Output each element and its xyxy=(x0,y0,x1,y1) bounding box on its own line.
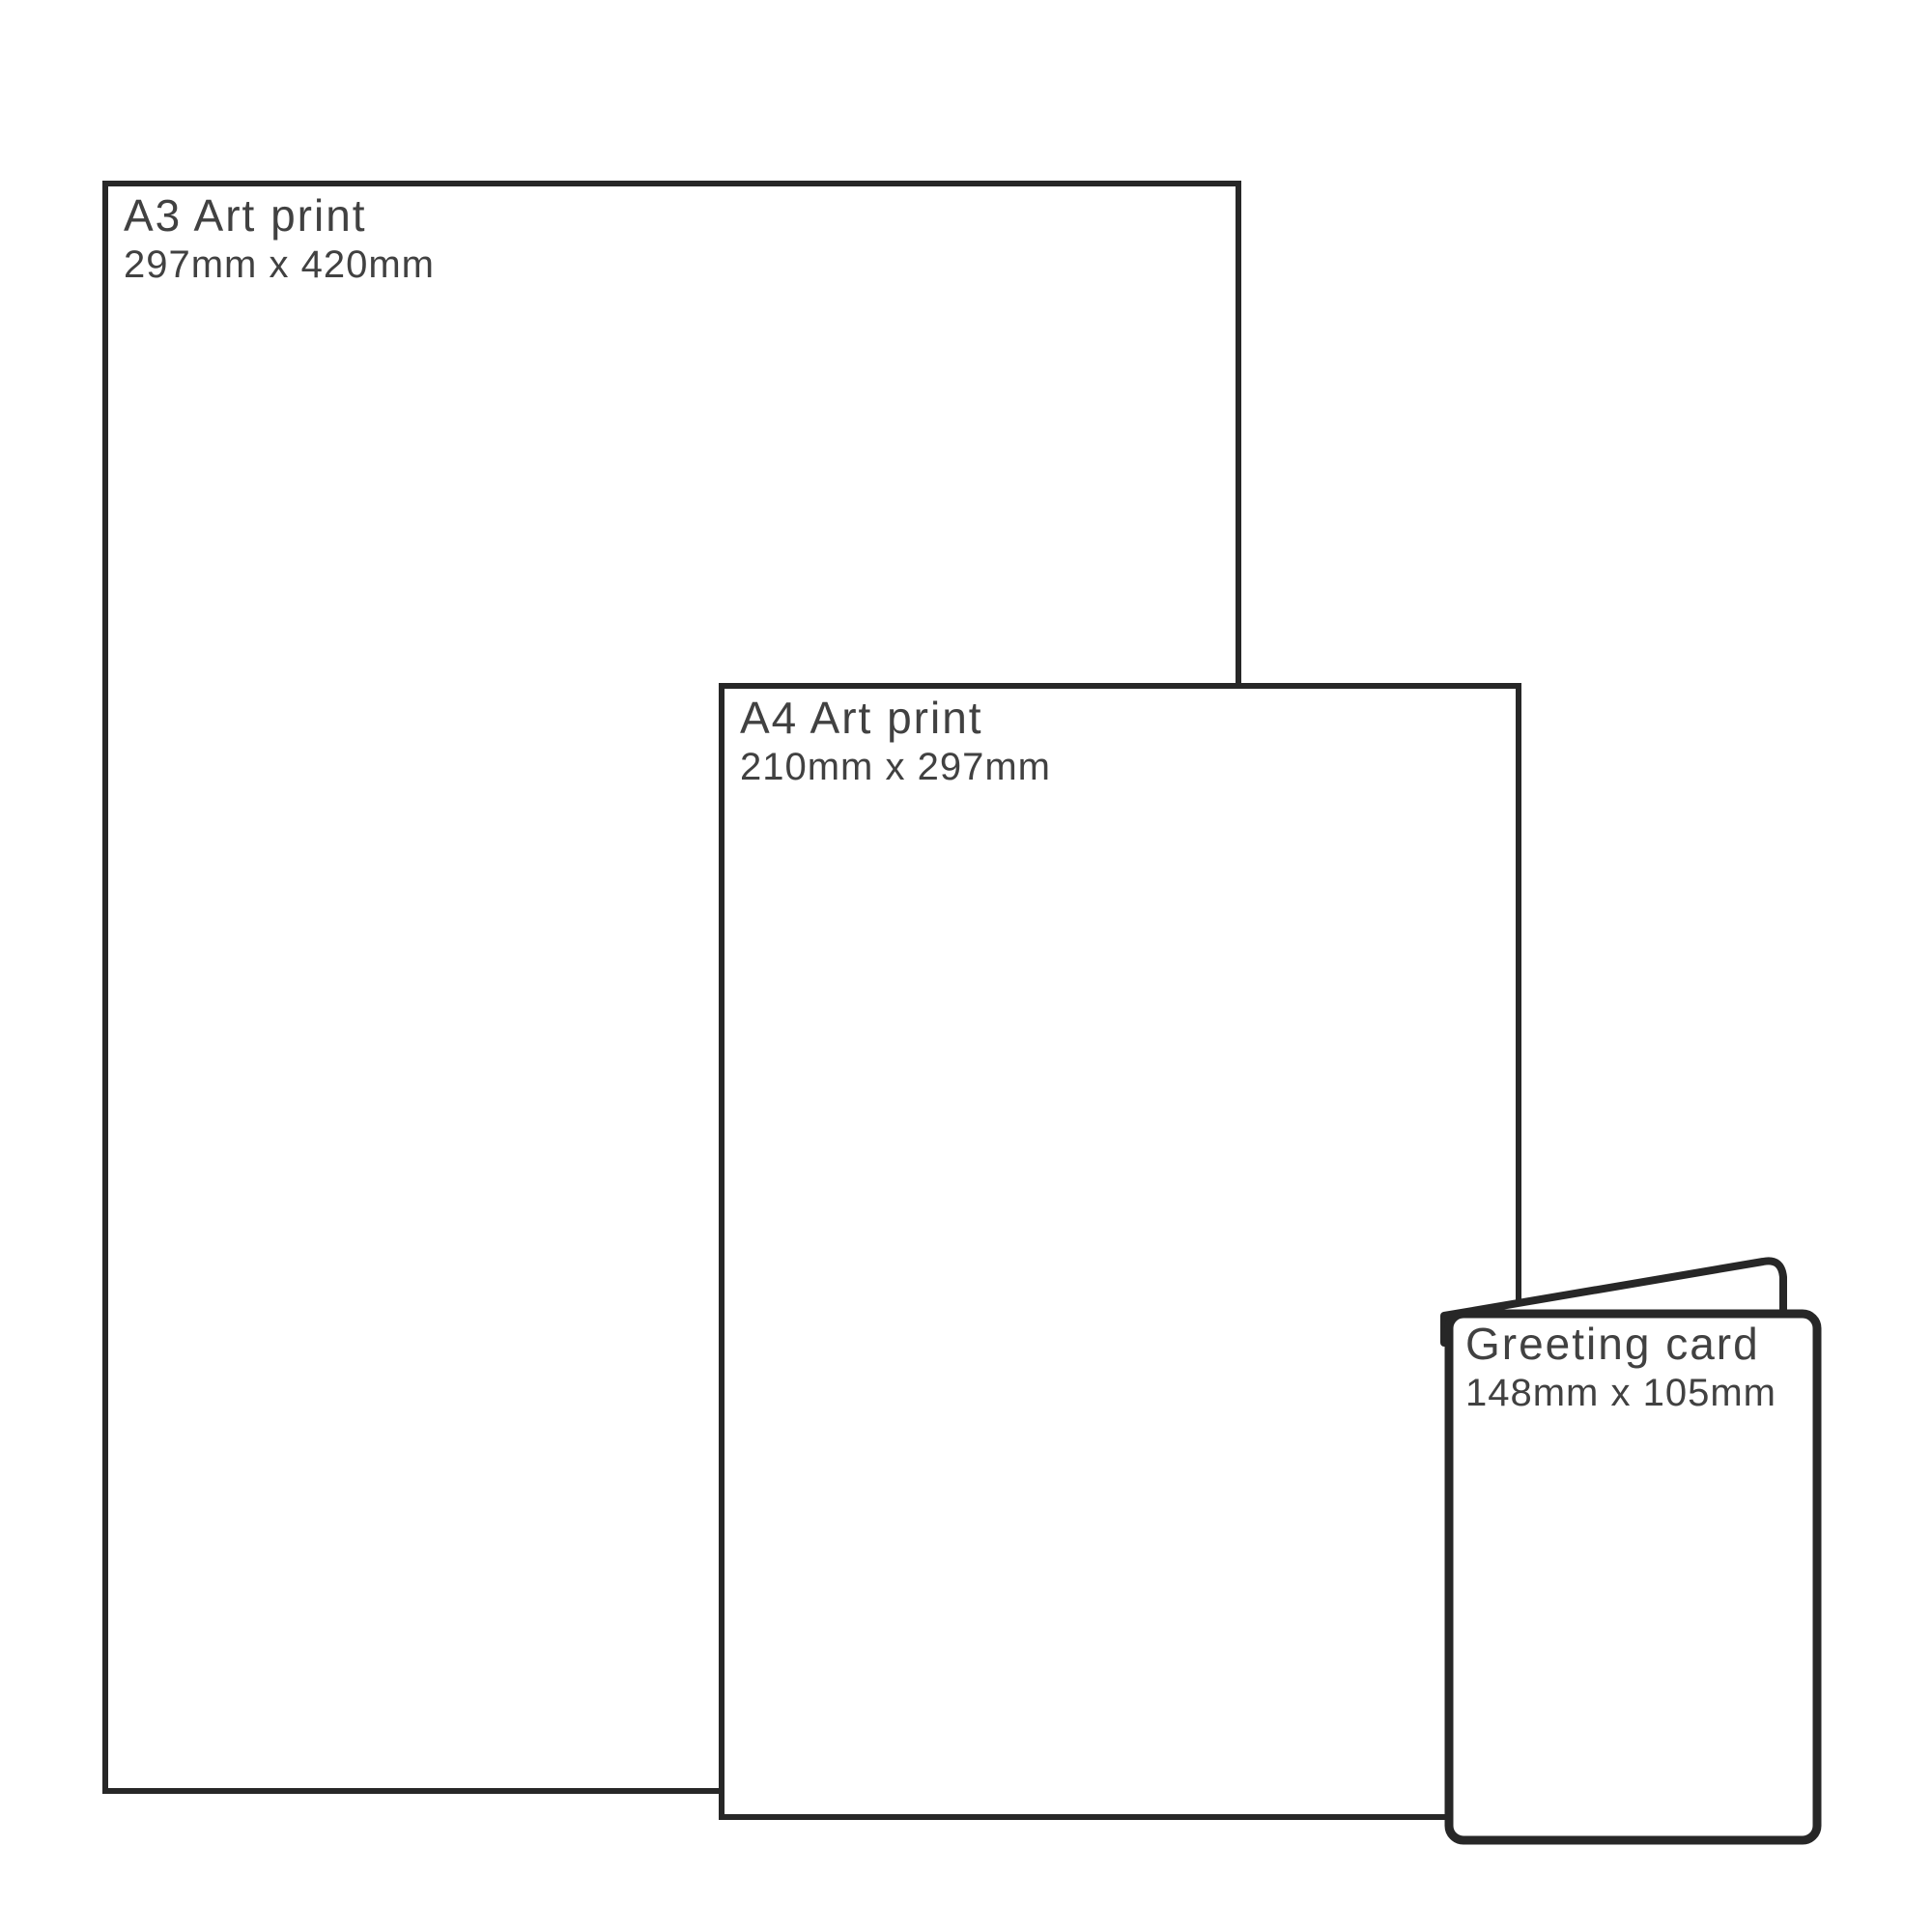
greeting-card-title: Greeting card xyxy=(1465,1320,1776,1370)
a3-print-dimensions: 297mm x 420mm xyxy=(124,243,435,287)
print-size-comparison-diagram: A3 Art print 297mm x 420mm A4 Art print … xyxy=(0,0,1932,1932)
greeting-card-dimensions: 148mm x 105mm xyxy=(1465,1372,1776,1415)
a3-print-title: A3 Art print xyxy=(124,191,435,241)
a3-print-label: A3 Art print 297mm x 420mm xyxy=(124,191,435,286)
greeting-card-label: Greeting card 148mm x 105mm xyxy=(1465,1320,1776,1414)
a4-print-label: A4 Art print 210mm x 297mm xyxy=(740,694,1051,788)
a4-print-title: A4 Art print xyxy=(740,694,1051,744)
a4-print-dimensions: 210mm x 297mm xyxy=(740,746,1051,789)
